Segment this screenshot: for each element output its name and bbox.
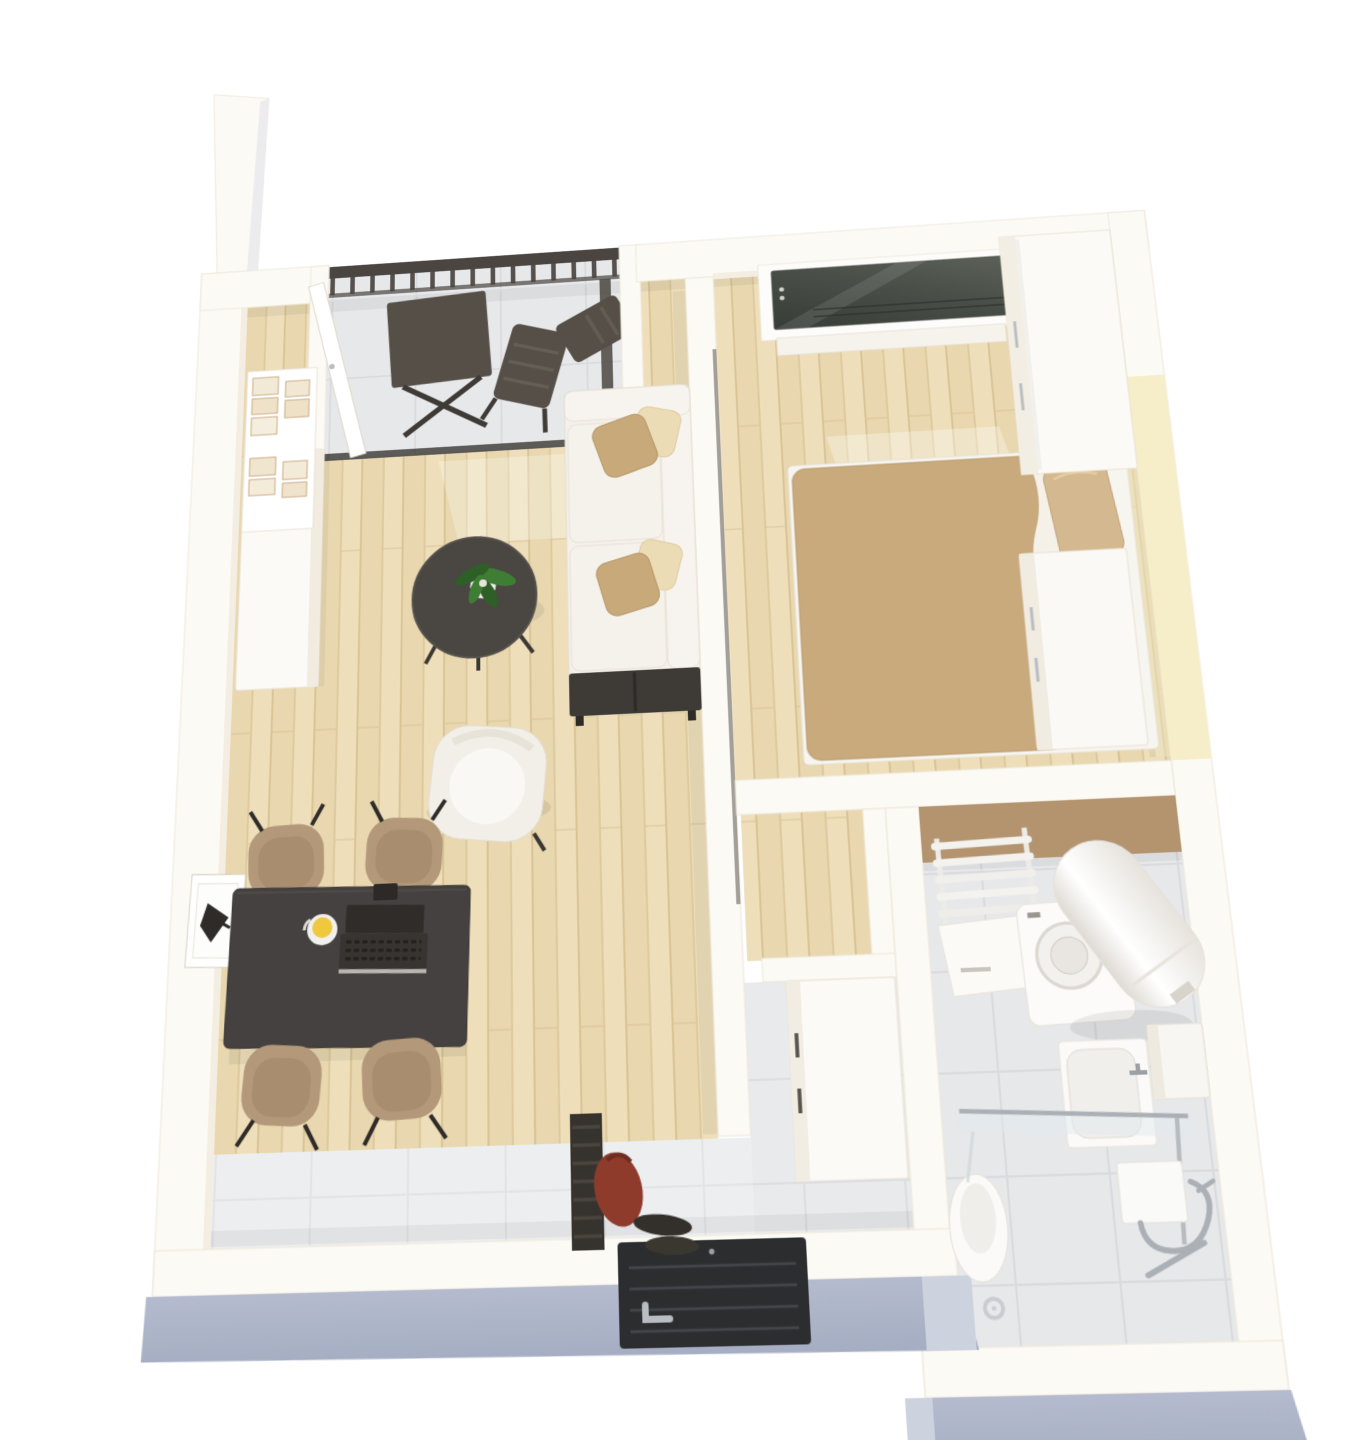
washer-controls: [1027, 912, 1040, 918]
mirror-cabinet: [1147, 1023, 1211, 1099]
exterior-band-bath: [905, 1390, 1315, 1440]
sofa: [564, 384, 702, 726]
smartphone: [373, 883, 397, 901]
plan-svg: Living room Bedroom Balcony Hallway / en…: [103, 17, 1357, 1440]
hall-cabinet: [786, 977, 908, 1182]
exterior-band-corner: [905, 1398, 937, 1440]
step-face: [922, 1275, 977, 1351]
entrance-door: [617, 1237, 811, 1349]
panel-handle: [961, 969, 991, 970]
bookshelf: [242, 367, 318, 532]
bedroom: [757, 230, 1170, 766]
dresser: [1019, 548, 1148, 750]
apartment-3d-plan: Living room Bedroom Balcony Hallway / en…: [103, 17, 1357, 1440]
bathroom-accent-wall: [919, 795, 1182, 862]
niche-floor: [741, 809, 876, 961]
floor-plan-scene: Living room Bedroom Balcony Hallway / en…: [0, 0, 1368, 1440]
hallway: [786, 977, 908, 1182]
laptop: [339, 904, 430, 973]
corner-shelf: [1116, 1161, 1188, 1224]
